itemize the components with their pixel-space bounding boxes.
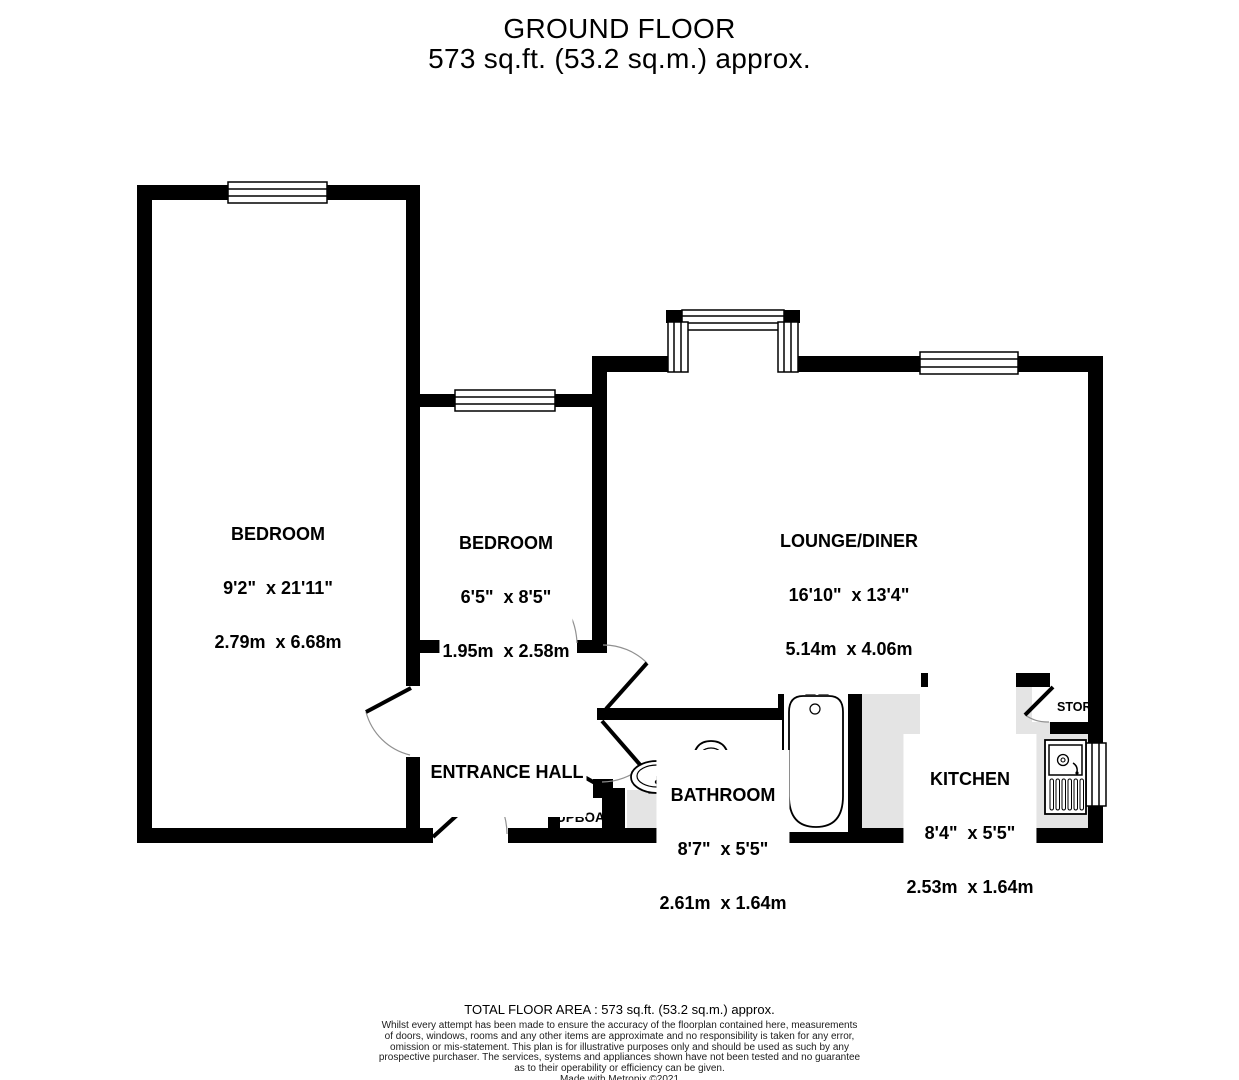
floorplan-drawing: STOR UPBOAR [0, 0, 1239, 1080]
disclaimer-line: of doors, windows, rooms and any other i… [0, 1032, 1239, 1043]
window-bedroom-main [228, 182, 327, 203]
room-size-metric: 2.53m x 1.64m [906, 878, 1033, 896]
floorplan-page: GROUND FLOOR 573 sq.ft. (53.2 sq.m.) app… [0, 0, 1239, 1080]
room-name: BEDROOM [214, 525, 341, 543]
room-size-metric: 2.61m x 1.64m [659, 894, 786, 912]
room-name: BEDROOM [442, 534, 569, 552]
room-label-bathroom: BATHROOM 8'7" x 5'5" 2.61m x 1.64m [656, 750, 789, 948]
room-size-imperial: 6'5" x 8'5" [442, 588, 569, 606]
kitchen-sink [1045, 740, 1086, 814]
bay-window [668, 310, 798, 372]
room-name: ENTRANCE HALL [431, 763, 584, 781]
room-label-bedroom-main: BEDROOM 9'2" x 21'11" 2.79m x 6.68m [211, 489, 344, 687]
room-size-imperial: 8'4" x 5'5" [906, 824, 1033, 842]
room-label-kitchen: KITCHEN 8'4" x 5'5" 2.53m x 1.64m [903, 734, 1036, 932]
floor-title: GROUND FLOOR [0, 14, 1239, 44]
total-floor-area: TOTAL FLOOR AREA : 573 sq.ft. (53.2 sq.m… [0, 1002, 1239, 1017]
room-size-imperial: 8'7" x 5'5" [659, 840, 786, 858]
room-name: LOUNGE/DINER [780, 532, 918, 550]
room-size-imperial: 16'10" x 13'4" [780, 586, 918, 604]
storage-label: STOR [1057, 700, 1092, 714]
window-kitchen [1086, 743, 1106, 806]
room-name: BATHROOM [659, 786, 786, 804]
window-lounge [920, 352, 1018, 374]
room-label-bedroom-second: BEDROOM 6'5" x 8'5" 1.95m x 2.58m [439, 498, 572, 696]
window-bedroom-second [455, 390, 555, 411]
room-label-entrance-hall: ENTRANCE HALL [428, 727, 587, 817]
bathtub [783, 684, 849, 833]
floor-area-subtitle: 573 sq.ft. (53.2 sq.m.) approx. [0, 44, 1239, 74]
disclaimer: Whilst every attempt has been made to en… [0, 1021, 1239, 1080]
room-name: KITCHEN [906, 770, 1033, 788]
room-size-metric: 5.14m x 4.06m [780, 640, 918, 658]
room-label-lounge-diner: LOUNGE/DINER 16'10" x 13'4" 5.14m x 4.06… [777, 496, 921, 694]
room-size-imperial: 9'2" x 21'11" [214, 579, 341, 597]
credit-line: Made with Metropix ©2021 [0, 1075, 1239, 1080]
room-size-metric: 2.79m x 6.68m [214, 633, 341, 651]
room-size-metric: 1.95m x 2.58m [442, 642, 569, 660]
